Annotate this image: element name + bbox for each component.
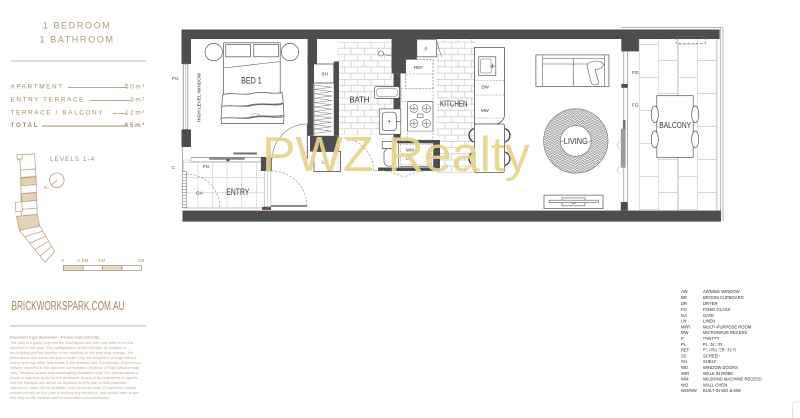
svg-text:FIXED GLASS: FIXED GLASS bbox=[703, 307, 731, 312]
svg-text:FG: FG bbox=[203, 164, 210, 170]
svg-text:FG: FG bbox=[681, 307, 687, 312]
svg-text:finishes depicted in this plan: finishes depicted in this plan are not i… bbox=[10, 366, 139, 370]
svg-text:rely only on the contract and: rely only on the contract and its associ… bbox=[10, 396, 110, 400]
svg-text:0.5M: 0.5M bbox=[77, 258, 89, 263]
svg-text:depicted in this plan. The con: depicted in this plan. The configuration… bbox=[10, 346, 126, 350]
svg-text:12m²: 12m² bbox=[125, 110, 146, 117]
svg-text:3m²: 3m² bbox=[130, 97, 146, 104]
svg-text:N: N bbox=[44, 185, 47, 190]
svg-text:50m²: 50m² bbox=[125, 84, 146, 91]
svg-text:REF: REF bbox=[414, 65, 423, 70]
svg-text:PWZ Realty: PWZ Realty bbox=[690, 332, 800, 370]
svg-text:TOTAL: TOTAL bbox=[11, 122, 40, 129]
svg-text:DW: DW bbox=[482, 85, 490, 90]
svg-text:BALCONY: BALCONY bbox=[659, 121, 691, 130]
svg-text:GA: GA bbox=[196, 191, 204, 197]
svg-text:BRICKWORKSPARK.COM.AU: BRICKWORKSPARK.COM.AU bbox=[12, 298, 125, 313]
svg-text:WM: WM bbox=[681, 377, 689, 382]
svg-text:PWZ Realty: PWZ Realty bbox=[262, 127, 530, 182]
svg-text:GATE: GATE bbox=[703, 313, 714, 318]
svg-text:WALK IN ROBE: WALK IN ROBE bbox=[703, 371, 733, 376]
svg-text:HIGH LEVEL WINDOW: HIGH LEVEL WINDOW bbox=[197, 72, 202, 122]
svg-text:aspects or views will be avail: aspects or views will be available from … bbox=[10, 386, 136, 390]
svg-text:1 BEDROOM: 1 BEDROOM bbox=[43, 21, 112, 31]
svg-text:65m²: 65m² bbox=[125, 122, 146, 129]
svg-text:ENTRY: ENTRY bbox=[226, 187, 249, 197]
svg-text:BR: BR bbox=[681, 295, 687, 300]
svg-text:dimensions and areas are appro: dimensions and areas are approximate onl… bbox=[10, 356, 137, 360]
svg-text:P: P bbox=[425, 47, 428, 52]
svg-text:The plan is a guide only and: The plan is a guide only and the final l… bbox=[10, 341, 134, 345]
svg-text:TERRACE / BALCONY: TERRACE / BALCONY bbox=[11, 110, 105, 117]
svg-text:FG: FG bbox=[632, 70, 639, 76]
svg-text:LIVING: LIVING bbox=[564, 137, 588, 146]
svg-text:KITCHEN: KITCHEN bbox=[440, 98, 468, 108]
svg-text:should not rely on this plan i: should not rely on this plan in making a… bbox=[10, 391, 139, 395]
svg-text:1 BATHROOM: 1 BATHROOM bbox=[39, 35, 114, 45]
svg-text:Important legal disclaimer - P: Important legal disclaimer - Please read… bbox=[10, 336, 100, 340]
svg-text:REF: REF bbox=[681, 348, 690, 353]
svg-text:GA: GA bbox=[681, 313, 687, 318]
svg-text:vary. Terraced spaces and land: vary. Terraced spaces and landscaping il… bbox=[10, 371, 139, 375]
svg-text:MPR: MPR bbox=[681, 324, 690, 329]
svg-text:WALL OVEN: WALL OVEN bbox=[703, 382, 727, 387]
svg-text:LEVELS 1-4: LEVELS 1-4 bbox=[50, 156, 95, 163]
svg-text:AWNING WINDOW: AWNING WINDOW bbox=[703, 289, 740, 294]
svg-text:WO/MW: WO/MW bbox=[681, 388, 697, 393]
svg-text:BATH: BATH bbox=[349, 95, 369, 105]
svg-text:made or warranty given by the: made or warranty given by the developer … bbox=[10, 376, 137, 380]
svg-text:FG: FG bbox=[632, 103, 639, 109]
svg-text:BROOM CUPBOARD: BROOM CUPBOARD bbox=[703, 295, 744, 300]
svg-text:PL: PL bbox=[681, 342, 687, 347]
svg-text:WASHING MACHINE RECESS: WASHING MACHINE RECESS bbox=[703, 377, 762, 382]
svg-text:AW: AW bbox=[681, 289, 688, 294]
svg-text:C: C bbox=[172, 165, 176, 171]
svg-text:SH: SH bbox=[681, 359, 687, 364]
svg-text:MULTI-PURPOSE ROOM: MULTI-PURPOSE ROOM bbox=[703, 324, 752, 329]
svg-text:FG: FG bbox=[172, 76, 179, 82]
svg-text:APARTMENT: APARTMENT bbox=[11, 84, 64, 91]
svg-text:1M: 1M bbox=[98, 258, 105, 263]
svg-text:LINEN: LINEN bbox=[703, 319, 715, 324]
svg-text:P: P bbox=[681, 336, 684, 341]
svg-text:BUILT-IN WO & MW: BUILT-IN WO & MW bbox=[703, 388, 741, 393]
svg-text:0: 0 bbox=[62, 258, 65, 263]
svg-text:WIR: WIR bbox=[681, 371, 689, 376]
svg-text:2M: 2M bbox=[137, 258, 144, 263]
svg-text:DRYER: DRYER bbox=[703, 301, 718, 306]
svg-text:ENTRY TERRACE: ENTRY TERRACE bbox=[11, 97, 85, 104]
svg-text:DR: DR bbox=[681, 301, 687, 306]
svg-text:MW: MW bbox=[481, 108, 490, 113]
svg-text:that the finished unit will be: that the finished unit will be as depict… bbox=[10, 381, 127, 385]
svg-text:MW: MW bbox=[681, 330, 688, 335]
svg-text:LN: LN bbox=[681, 319, 686, 324]
svg-text:the building and the position: the building and the position of the bui… bbox=[10, 351, 134, 355]
svg-text:SC: SC bbox=[681, 353, 687, 358]
svg-text:notice and may differ from tho: notice and may differ from those in the … bbox=[10, 361, 141, 365]
svg-text:BED 1: BED 1 bbox=[241, 75, 262, 85]
svg-text:WD: WD bbox=[681, 365, 688, 370]
svg-text:WO: WO bbox=[681, 382, 689, 387]
svg-text:SH: SH bbox=[322, 72, 328, 77]
